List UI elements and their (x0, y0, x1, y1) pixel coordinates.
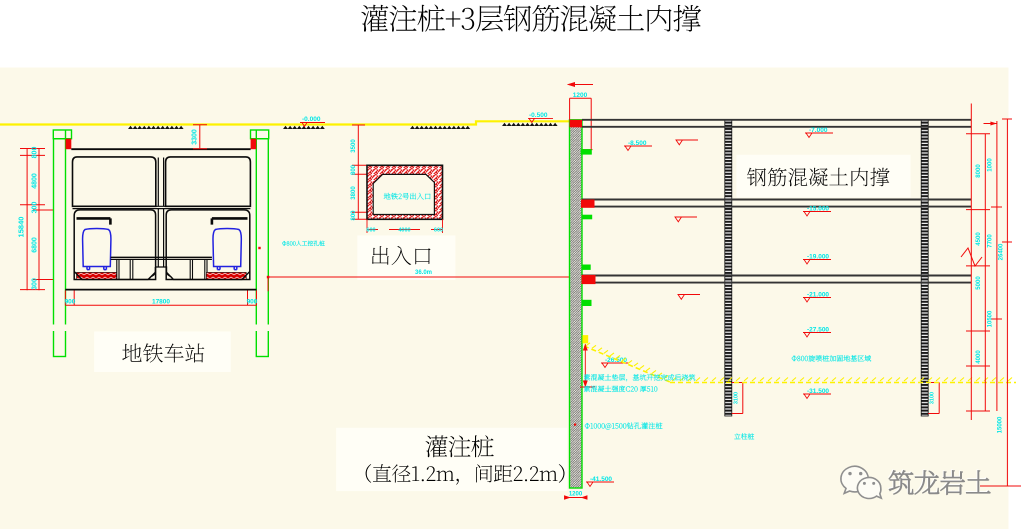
svg-text:-0.000: -0.000 (302, 116, 321, 123)
svg-text:7700: 7700 (988, 234, 994, 248)
svg-text:300: 300 (32, 278, 39, 290)
svg-text:600: 600 (366, 228, 375, 234)
svg-text:800: 800 (351, 164, 357, 175)
svg-text:10500: 10500 (988, 310, 994, 327)
svg-text:3800: 3800 (351, 186, 357, 200)
svg-text:8000: 8000 (976, 164, 982, 178)
svg-text:1200: 1200 (569, 492, 583, 498)
svg-text:3300: 3300 (192, 129, 199, 145)
svg-text:800: 800 (32, 147, 39, 159)
svg-text:26400: 26400 (999, 243, 1005, 260)
svg-text:300: 300 (32, 202, 39, 214)
svg-text:6800: 6800 (32, 237, 39, 253)
svg-text:17800: 17800 (152, 299, 170, 306)
svg-text:5000: 5000 (976, 276, 982, 290)
svg-text:3100: 3100 (733, 392, 739, 404)
svg-text:15000: 15000 (998, 416, 1004, 433)
svg-text:900: 900 (65, 299, 76, 306)
svg-text:15840: 15840 (17, 217, 26, 238)
svg-text:4800: 4800 (32, 173, 39, 189)
svg-text:36.0m: 36.0m (415, 270, 432, 276)
svg-text:900: 900 (247, 299, 258, 306)
svg-text:600: 600 (434, 228, 443, 234)
svg-text:4500: 4500 (976, 232, 982, 246)
svg-text:4000: 4000 (976, 350, 982, 364)
svg-text:4000: 4000 (398, 228, 410, 234)
svg-text:3100: 3100 (930, 392, 936, 404)
svg-text:1000: 1000 (988, 158, 994, 172)
svg-text:800: 800 (351, 210, 357, 221)
svg-text:-0.500: -0.500 (529, 112, 548, 119)
svg-text:3500: 3500 (351, 139, 357, 153)
